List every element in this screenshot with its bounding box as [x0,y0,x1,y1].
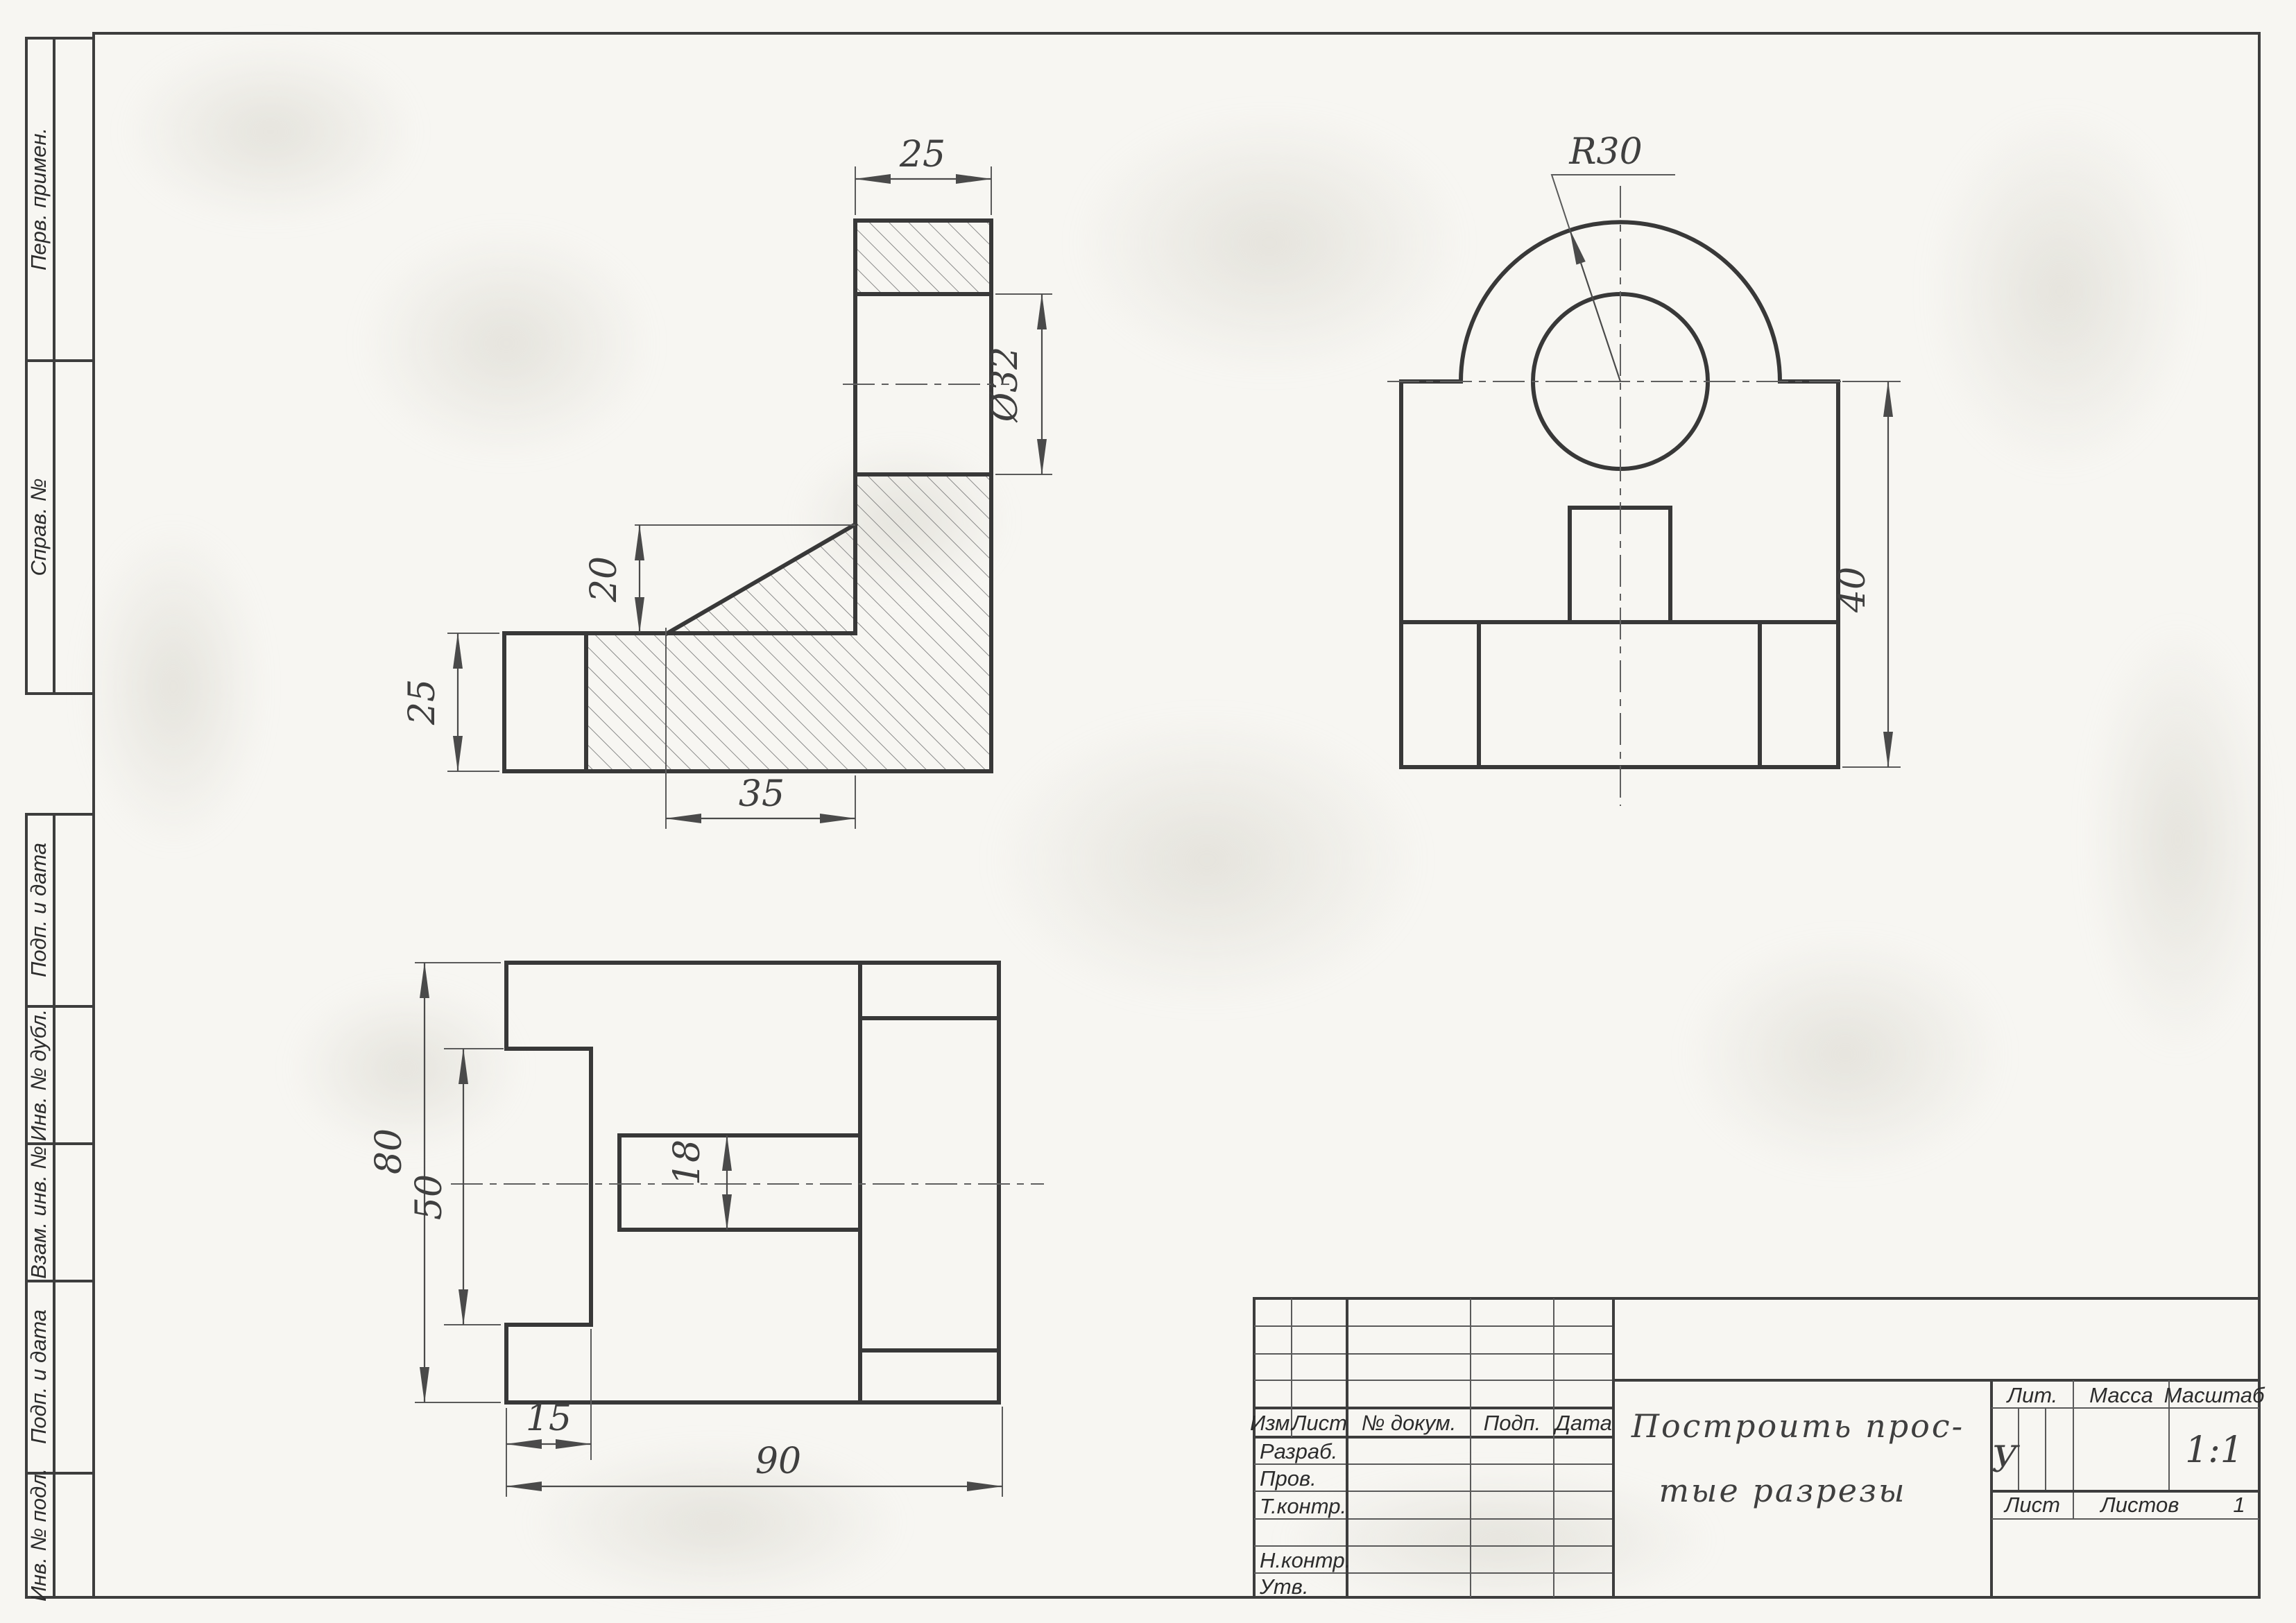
dim-text-25-top: 25 [899,134,945,175]
dim-text-40: 40 [1832,567,1874,613]
dim-text-35: 35 [739,773,785,815]
col-izm: Изм. [1250,1411,1296,1435]
margin-label-vzam-inv: Взам. инв. № [26,1146,51,1279]
role-razrab: Разраб. [1260,1439,1337,1463]
margin-label-sprav-no: Справ. № [26,479,51,576]
dim-section-base-height: 25 [402,633,499,771]
drawing-canvas: Перв. примен. Справ. № Подп. и дата Инв.… [0,0,2296,1623]
lit-value: У [1991,1439,2020,1481]
dim-text-18: 18 [667,1140,708,1185]
col-dokum: № докум. [1362,1411,1457,1435]
dim-plan-tab: 15 [506,1329,591,1497]
sheet-label: Лист [2003,1493,2060,1517]
dim-section-top-width: 25 [855,134,991,215]
col-podp: Подп. [1484,1411,1541,1435]
dim-plan-slot: 18 [667,1135,727,1230]
margin-label-perv-primen: Перв. примен. [26,128,51,270]
drawing-sheet: { "margin": { "labels": ["Перв. примен."… [0,0,2296,1623]
front-base-splits [1479,622,1760,767]
dim-front-height: 40 [1832,381,1901,767]
margin-label-inv-dubl: Инв. № дубл. [26,1009,51,1142]
margin-label-podp-data-1: Подп. и дата [26,843,51,977]
margin-column: Перв. примен. Справ. № Подп. и дата Инв.… [26,38,94,1601]
sheets-label: Листов [2100,1493,2179,1517]
scale-label: Масштаб [2164,1383,2265,1407]
dim-plan-notch: 50 [409,1049,504,1325]
mass-label: Масса [2089,1383,2153,1407]
dim-text-r30: R30 [1568,131,1642,173]
sheets-value: 1 [2233,1493,2245,1517]
col-data: Дата [1553,1411,1612,1435]
view-section-cut: 25 Ø32 20 25 35 [402,134,1052,829]
role-nkontr: Н.контр. [1260,1548,1351,1572]
dim-front-radius: R30 [1552,131,1675,381]
doc-title-line2: тые разрезы [1659,1472,1906,1509]
dim-plan-width: 90 [506,1407,1002,1497]
col-list: Лист [1290,1411,1347,1435]
dim-text-20: 20 [583,556,625,603]
scale-value: 1:1 [2185,1429,2243,1471]
title-block: Изм. Лист № докум. Подп. Дата Разраб. Пр… [1250,1298,2265,1599]
dim-text-dia32: Ø32 [984,347,1026,424]
lit-label: Лит. [2006,1383,2058,1407]
view-front: R30 40 [1387,131,1901,806]
dim-text-50: 50 [409,1174,450,1220]
role-prov: Пров. [1260,1466,1317,1491]
title-block-border [1254,1298,2259,1597]
hatch-top-band [855,221,991,294]
plan-outline [506,963,999,1402]
margin-label-podp-data-2: Подп. и дата [26,1309,51,1444]
dim-text-80: 80 [368,1128,410,1174]
view-plan: 80 50 18 15 90 [368,963,1044,1497]
role-utv: Утв. [1259,1574,1308,1599]
dim-text-90: 90 [755,1441,801,1482]
dim-text-25-left: 25 [402,679,443,725]
dim-text-15: 15 [526,1398,572,1439]
title-block-grid [1254,1298,2259,1597]
role-tkontr: Т.контр. [1260,1494,1346,1518]
plan-slot [619,1135,860,1230]
hatch-body [586,474,991,771]
sheet-frame [94,33,2259,1597]
dim-section-hole-dia: Ø32 [984,294,1052,474]
doc-title-line1: Построить прос- [1631,1407,1964,1445]
margin-label-inv-podl: Инв. № подл. [26,1468,51,1601]
